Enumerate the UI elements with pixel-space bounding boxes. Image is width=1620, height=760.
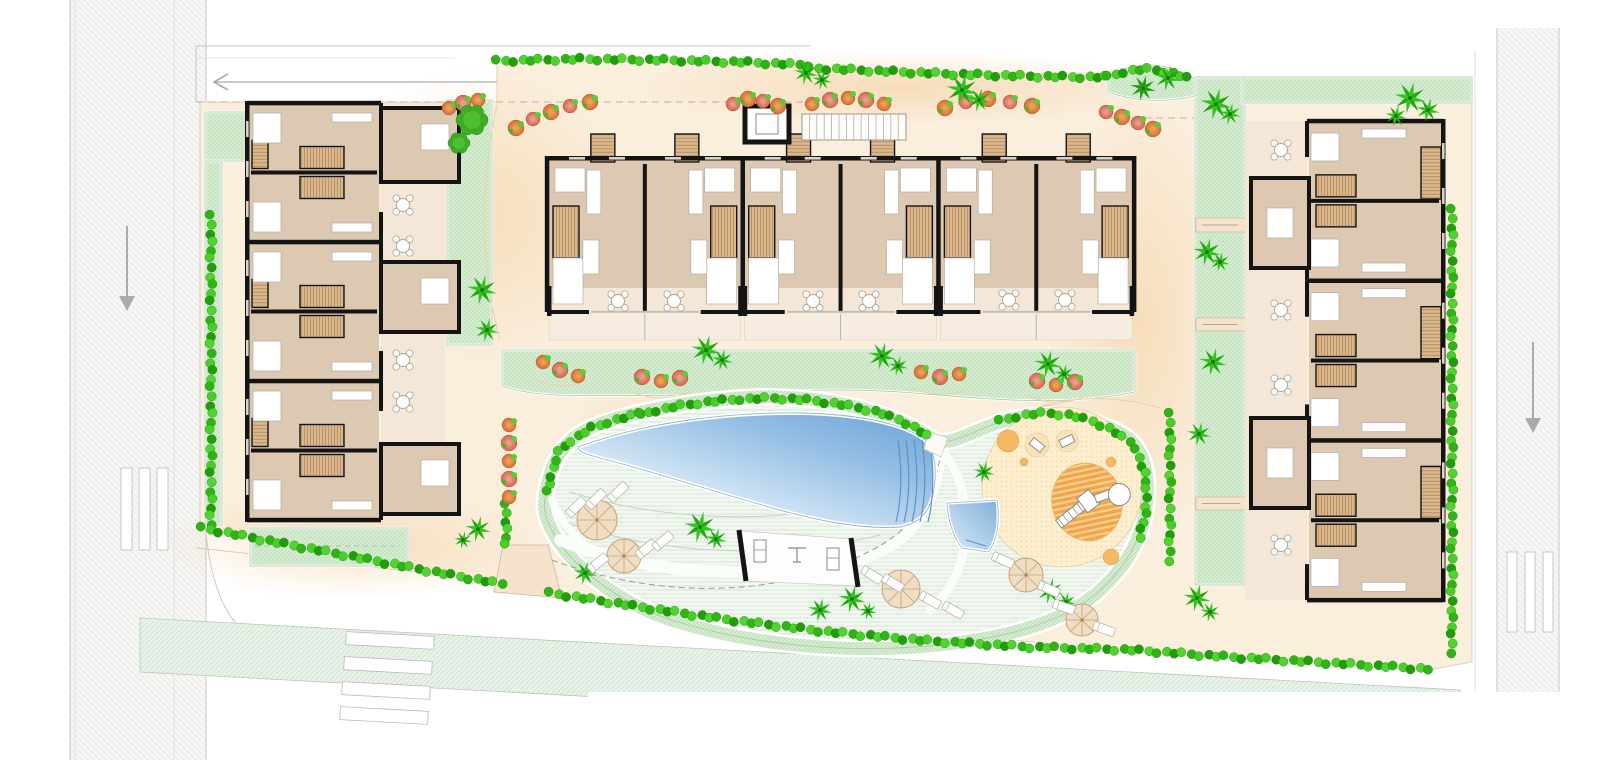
hedge-southwest-shrub [279, 538, 288, 547]
hedge-south-shrub [1388, 661, 1397, 670]
facade-wall [1305, 564, 1309, 600]
sofa [974, 240, 990, 274]
shrub-leaf [765, 94, 771, 100]
hedge-top-1-shrub [533, 54, 542, 63]
window [1442, 233, 1445, 249]
bath-core [1316, 365, 1356, 387]
shrub-leaf [1108, 105, 1114, 111]
sofa [779, 240, 795, 274]
bath-core [300, 425, 344, 447]
kitchen-counter [587, 170, 601, 214]
kitchen-counter [783, 170, 797, 214]
table-top [1003, 294, 1016, 307]
hedge-east-shrub [1446, 459, 1455, 468]
hedge-south-shrub [965, 637, 974, 646]
facade-wall [1305, 281, 1309, 317]
bed [749, 258, 779, 304]
kitchen-counter [689, 170, 703, 214]
palm-trunk [698, 525, 702, 529]
hedge-south-shrub [754, 618, 763, 627]
palm-trunk [1218, 260, 1222, 264]
glass-wall [982, 311, 1090, 313]
site-plan-page [0, 0, 1620, 760]
hedge-south-shrub [1177, 648, 1186, 657]
kitchen-counter [332, 223, 372, 232]
window [1442, 507, 1445, 523]
hedge-south-shrub [1406, 665, 1415, 674]
palm-trunk [1426, 108, 1430, 112]
table-top [397, 199, 410, 212]
window [1442, 393, 1445, 409]
hedge-south-shrub [1067, 645, 1076, 654]
hedge-east-shrub [1446, 544, 1455, 553]
shrub-leaf [511, 418, 517, 424]
palm-trunk [804, 71, 808, 75]
hedge-right-strip-shrub [1166, 547, 1175, 556]
hedge-playground-east-shrub [1135, 453, 1144, 462]
hedge-playground-north-shrub [1095, 422, 1104, 431]
parasol-pole [1080, 618, 1083, 621]
hedge-top-1-shrub [617, 54, 626, 63]
hedge-south-shrub [1237, 655, 1246, 664]
hedge-west-shrub [205, 468, 214, 477]
shrub-leaf [933, 378, 937, 382]
shrub-leaf [923, 365, 929, 371]
shrub-leaf [1146, 130, 1150, 134]
hedge-top-1-shrub [761, 60, 770, 69]
hedge-south-shrub [923, 635, 932, 644]
bed [1267, 208, 1293, 238]
site-plan-drawing [0, 0, 1620, 760]
shrub-leaf [990, 92, 996, 98]
shrub-leaf [583, 103, 587, 107]
spine-wall [1034, 164, 1038, 312]
hedge-top-1-shrub [575, 53, 584, 62]
hedge-pool-north-shrub [735, 396, 744, 405]
palm-trunk [880, 354, 884, 358]
kitchen-counter [1362, 289, 1406, 298]
sofa [1082, 240, 1098, 274]
spine-wall [643, 164, 647, 312]
bath-core [749, 206, 775, 258]
shrub-leaf [1034, 99, 1040, 105]
palm-trunk [1166, 76, 1170, 80]
hedge-west-shrub [208, 494, 217, 503]
shrub-leaf [509, 129, 513, 133]
staircase [1421, 466, 1441, 518]
bath-core [1102, 206, 1128, 258]
window [246, 399, 249, 415]
hedge-south-shrub [982, 641, 991, 650]
shrub-leaf [544, 113, 548, 117]
hedge-south-shrub [1261, 653, 1270, 662]
window [609, 157, 625, 160]
sofa [691, 240, 707, 274]
hedge-playground-east-shrub [1130, 444, 1139, 453]
bath-core [711, 206, 737, 258]
right-road [1497, 28, 1559, 760]
window [1096, 157, 1112, 160]
spine-wall [251, 171, 377, 175]
hedge-playground-east-shrub [1143, 493, 1152, 502]
palm-trunk [982, 470, 986, 474]
party-wall [1307, 598, 1443, 603]
shrub-leaf [553, 371, 557, 375]
hedge-south-shrub [1304, 656, 1313, 665]
bed [946, 168, 976, 192]
parasol-pole [595, 518, 598, 521]
kitchen-counter [1362, 423, 1406, 432]
hedge-pool-west-shrub [551, 456, 560, 465]
bath-core [1316, 494, 1356, 516]
hedge-right-strip-shrub [1165, 557, 1174, 566]
hedge-south-shrub [940, 639, 949, 648]
spine-wall [1311, 359, 1439, 363]
hedge-south-shrub [544, 587, 553, 596]
shrub-leaf [1155, 122, 1161, 128]
hedge-south-shrub [687, 611, 696, 620]
hedge-southwest-shrub [446, 569, 455, 578]
bath-core [944, 206, 970, 258]
hedge-west-shrub [208, 365, 217, 374]
table-top [397, 354, 410, 367]
staircase [1421, 307, 1441, 359]
shrub-leaf [511, 472, 517, 478]
facade-wall [379, 381, 383, 411]
hedge-south-shrub [603, 599, 612, 608]
hedge-east-shrub [1449, 273, 1458, 282]
hedge-south-shrub [1007, 640, 1016, 649]
window [665, 157, 681, 160]
hedge-south-shrub [1346, 658, 1355, 667]
hedge-south-shrub [1363, 662, 1372, 671]
hedge-southwest-shrub [463, 575, 472, 584]
window [861, 157, 877, 160]
staircase [252, 141, 268, 169]
party-wall [247, 518, 381, 523]
palm-trunk [1062, 372, 1066, 376]
bed [555, 168, 585, 192]
shrub-leaf [511, 454, 517, 460]
window [569, 157, 585, 160]
hedge-right-strip-shrub [1164, 494, 1173, 503]
hedge-top-1-shrub [785, 58, 794, 67]
hedge-west-shrub [207, 349, 216, 358]
hedge-east-shrub [1446, 629, 1455, 638]
hedge-south-shrub [1194, 652, 1203, 661]
shrub-leaf [771, 107, 775, 111]
palm-trunk [1228, 112, 1232, 116]
hedge-blob-shrub [1118, 69, 1127, 78]
spine-wall [251, 449, 377, 453]
table-top [1275, 304, 1288, 317]
hedge-east-shrub [1448, 256, 1457, 265]
hedge-west-shrub [207, 263, 216, 272]
hedge-east-shrub [1449, 358, 1458, 367]
shrub-leaf [947, 101, 953, 107]
bath-core [553, 206, 579, 258]
shrub-leaf [1077, 375, 1083, 381]
hedge-pool-north-shrub [922, 430, 931, 439]
hedge-playground-east-shrub [1141, 468, 1150, 477]
hedge-east-shrub [1449, 315, 1458, 324]
shrub-leaf [592, 95, 598, 101]
hedge-east-shrub [1446, 289, 1455, 298]
table-top [1275, 539, 1288, 552]
glass-wall [787, 311, 895, 313]
spine-wall [1311, 518, 1439, 522]
hedge-south-shrub [1152, 649, 1161, 658]
palm-trunk [1046, 362, 1050, 366]
bath-core [300, 316, 344, 338]
shrub-leaf [456, 104, 460, 108]
hedge-southwest-shrub [213, 528, 222, 537]
window [246, 161, 249, 177]
table-top [612, 295, 625, 308]
hedge-southwest-shrub [498, 579, 507, 588]
hedge-west-shrub [207, 392, 216, 401]
facade-wall-south [743, 310, 785, 314]
hedge-top-2-shrub [864, 67, 873, 76]
hedge-right-strip-shrub [1166, 504, 1175, 513]
hedge-pool-north-shrub [802, 394, 811, 403]
shrub-leaf [502, 480, 506, 484]
hedge-west-shrub [208, 451, 217, 460]
table-top [668, 295, 681, 308]
party-wall [247, 240, 381, 245]
hedge-southwest-shrub [363, 554, 372, 563]
hedge-west-shrub [207, 435, 216, 444]
hedge-top-2-shrub [1075, 74, 1084, 83]
hedge-playground-north-shrub [994, 415, 1003, 424]
gym-machine [827, 548, 839, 570]
palm-trunk [714, 537, 718, 541]
shrub-leaf [832, 93, 838, 99]
hedge-south-shrub [1134, 645, 1143, 654]
tree-canopy-center [463, 111, 481, 129]
table-top [397, 396, 410, 409]
hedge-south-shrub [670, 606, 679, 615]
shrub-leaf [562, 363, 568, 369]
hedge-pool-north-shrub [675, 400, 684, 409]
window [1000, 157, 1016, 160]
bed [1098, 258, 1128, 304]
shrub-leaf [850, 91, 856, 97]
hedge-southwest-shrub [238, 530, 247, 539]
hedge-top-2-shrub [948, 71, 957, 80]
spine-wall [1311, 199, 1439, 203]
shrub-leaf [518, 121, 524, 127]
kitchen-counter [332, 252, 372, 261]
hedge-pool-north-shrub [634, 408, 643, 417]
table-top [397, 240, 410, 253]
hedge-southwest-shrub [338, 552, 347, 561]
bath-core [300, 147, 344, 169]
window [901, 157, 917, 160]
lawn-topleft [205, 112, 247, 161]
bed [944, 258, 974, 304]
hedge-southwest-shrub [321, 546, 330, 555]
parasol [607, 539, 641, 573]
bed [553, 258, 583, 304]
palm-trunk [1394, 114, 1398, 118]
bed [253, 113, 281, 143]
hedge-east-shrub [1448, 511, 1457, 520]
shrub-leaf [750, 92, 756, 98]
palm-trunk [1408, 96, 1412, 100]
bed [1311, 452, 1339, 480]
palm-trunk [1211, 360, 1215, 364]
bed [1311, 133, 1339, 161]
hedge-top-1-shrub [701, 55, 710, 64]
hedge-southwest-shrub [380, 560, 389, 569]
kitchen-counter [1362, 448, 1406, 457]
hedge-southwest-shrub [404, 561, 413, 570]
bed [421, 460, 449, 486]
hedge-south-shrub [1423, 665, 1432, 674]
palm-trunk [1197, 432, 1201, 436]
road-marking-bar [139, 468, 150, 550]
bed [1267, 448, 1293, 478]
hedge-right-strip-shrub [1166, 418, 1175, 427]
hedge-south-shrub [1050, 642, 1059, 651]
crosswalk-bar [340, 707, 429, 725]
hedge-entrance-shrub [502, 508, 511, 517]
drawing-crop-mask [588, 692, 1620, 760]
palm-trunk [1195, 596, 1199, 600]
hedge-top-2-shrub [1058, 71, 1067, 80]
hedge-entrance-shrub [503, 524, 512, 533]
hedge-pool-north-shrub [901, 420, 910, 429]
kitchen-counter [332, 501, 372, 510]
hedge-west-shrub [205, 210, 214, 219]
spine-wall [839, 164, 843, 312]
hedge-west-shrub [207, 220, 216, 229]
palm-trunk [820, 78, 824, 82]
hedge-east-shrub [1449, 230, 1458, 239]
hedge-east-shrub [1446, 417, 1455, 426]
shrub-leaf [480, 93, 486, 99]
hedge-right-strip-shrub [1164, 537, 1173, 546]
facade-wall [379, 351, 383, 381]
gym-machine [754, 540, 766, 562]
hedge-top-2-shrub [1015, 70, 1024, 79]
party-wall [1132, 156, 1137, 312]
bed [1311, 558, 1339, 586]
hedge-west-shrub [205, 510, 214, 519]
shrub-leaf [1124, 110, 1130, 116]
hedge-pool-north-shrub [844, 400, 853, 409]
shrub-leaf [1025, 107, 1029, 111]
tree-canopy-center [453, 137, 465, 149]
window [1442, 348, 1445, 364]
hedge-east-shrub [1448, 554, 1457, 563]
bath-core [300, 177, 344, 199]
hedge-south-shrub [729, 617, 738, 626]
palm-trunk [818, 608, 822, 612]
palm-trunk [1214, 102, 1218, 106]
table-top [807, 295, 820, 308]
hedge-top-2-shrub [1033, 73, 1042, 82]
road-marking-bar [1525, 552, 1535, 632]
hedge-west-shrub [205, 253, 214, 262]
kitchen-counter [978, 170, 992, 214]
bed [253, 202, 281, 232]
hedge-right-strip-shrub [1164, 451, 1173, 460]
hedge-pool-north-shrub [693, 400, 702, 409]
kitchen-counter [1362, 582, 1406, 591]
kitchen-counter [332, 391, 372, 400]
shrub-leaf [663, 374, 669, 380]
staircase [1421, 147, 1441, 199]
shrub-leaf [511, 490, 517, 496]
party-wall [1307, 279, 1443, 284]
bed [1096, 168, 1126, 192]
hedge-pool-west-shrub [586, 422, 595, 431]
road-marking-bar [1543, 552, 1553, 632]
window [1442, 303, 1445, 319]
hedge-top-1-shrub [677, 57, 686, 66]
shrub-leaf [814, 97, 820, 103]
hedge-entrance-shrub [500, 539, 509, 548]
hedge-top-1-shrub [491, 55, 500, 64]
bed [253, 391, 281, 421]
hedge-southwest-shrub [422, 567, 431, 576]
lawn-topright [1242, 77, 1472, 103]
hedge-pool-north-shrub [777, 395, 786, 404]
hedge-right-strip-shrub [1167, 477, 1176, 486]
shrub-leaf [580, 369, 586, 375]
hedge-pool-north-shrub [885, 411, 894, 420]
hedge-west-shrub [205, 339, 214, 348]
bed [1311, 399, 1339, 427]
hedge-southwest-shrub [255, 536, 264, 545]
hedge-east-shrub [1446, 332, 1455, 341]
palm-trunk [485, 328, 489, 332]
hedge-south-shrub [645, 605, 654, 614]
palm-trunk [960, 88, 964, 92]
shrub-leaf [511, 436, 517, 442]
party-wall [1307, 438, 1443, 443]
hedge-playground-north-shrub [1078, 413, 1087, 422]
bath-core [1316, 335, 1356, 357]
shrub-leaf [1030, 382, 1034, 386]
palm-trunk [476, 527, 480, 531]
hedge-west-shrub [207, 478, 216, 487]
hedge-east-shrub [1449, 570, 1458, 579]
palm-trunk [720, 358, 724, 362]
facade-wall-south [896, 310, 938, 314]
hedge-west-shrub [208, 237, 217, 246]
hedge-playground-north-shrub [1011, 413, 1020, 422]
hedge-east-shrub [1447, 649, 1456, 658]
hedge-top-2-shrub [889, 66, 898, 75]
hedge-pool-north-shrub [717, 395, 726, 404]
hedge-right-strip-shrub [1167, 435, 1176, 444]
hedge-east-shrub [1449, 400, 1458, 409]
hedge-top-2-shrub [973, 69, 982, 78]
shrub-leaf [823, 101, 827, 105]
bed [421, 124, 449, 150]
hedge-southwest-shrub [297, 544, 306, 553]
window [246, 479, 249, 495]
hedge-top-2-shrub [846, 64, 855, 73]
hedge-playground-north-shrub [1054, 411, 1063, 420]
hedge-west-shrub [205, 425, 214, 434]
hedge-east-shrub [1449, 443, 1458, 452]
hedge-south-shrub [562, 592, 571, 601]
shrub-leaf [886, 97, 892, 103]
